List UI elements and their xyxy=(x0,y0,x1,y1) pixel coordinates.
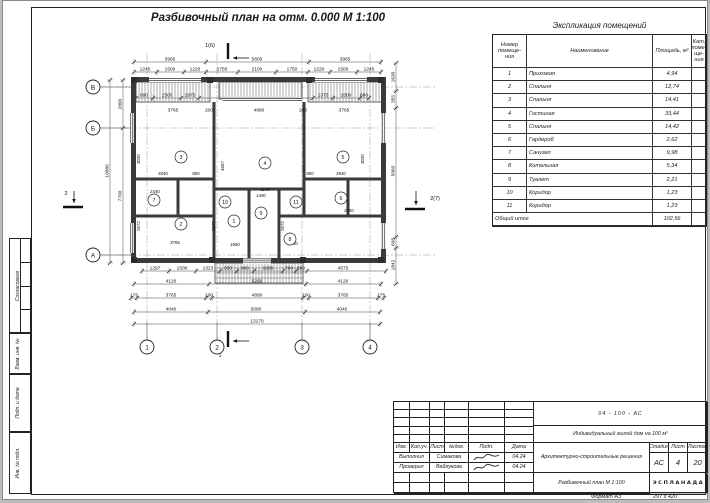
dim-text: 3765 xyxy=(338,293,349,299)
dim-text: 7700 xyxy=(118,190,124,201)
dim-text: 3020 xyxy=(360,154,365,164)
dim-text: 200 xyxy=(299,108,307,114)
dim-text: 2672 xyxy=(211,221,216,231)
dim-text: 4890 xyxy=(252,293,263,299)
room-area: 12,74 xyxy=(653,81,692,94)
dim-text: 175 xyxy=(377,293,385,299)
stamp-header: Изм. xyxy=(394,443,410,453)
dim-text: 900 xyxy=(241,266,249,272)
dim-text: 3765 xyxy=(339,108,350,114)
dim-text: 4657 xyxy=(220,161,225,171)
dim-text: 4120 xyxy=(338,279,349,285)
dim-text: 100 xyxy=(302,293,310,299)
revision-cell xyxy=(394,402,410,410)
role-label: Выполнил xyxy=(394,453,430,463)
col-header-area: Площадь, м² xyxy=(653,35,692,68)
revision-cell xyxy=(469,402,505,410)
dim-text: 700 xyxy=(285,266,293,272)
room-area: 5,34 xyxy=(653,160,692,173)
room-area: 14,41 xyxy=(653,94,692,107)
dim-text: 2 xyxy=(180,222,183,228)
empty-stamp-cell xyxy=(410,473,430,484)
col-header-number: Номер помеще- ния xyxy=(493,35,527,68)
dim-text: 3765 xyxy=(168,108,179,114)
section-mark-label: 1 xyxy=(218,353,221,359)
dim-text: 5290 xyxy=(252,279,263,285)
dim-text: 4040 xyxy=(337,307,348,313)
dim-text: 800 xyxy=(306,171,314,176)
empty-stamp-cell xyxy=(394,473,410,484)
section-name: Архитектурно-строительные решения xyxy=(534,443,650,473)
stage-label: Стадия xyxy=(650,443,669,453)
dim-text: 1 xyxy=(145,344,149,351)
room-number: 7 xyxy=(493,147,527,160)
room-category xyxy=(692,187,706,200)
dim-text: 4 xyxy=(368,344,372,351)
room-name: Коридор xyxy=(527,187,653,200)
dim-text: 608 xyxy=(391,238,397,246)
revision-cell xyxy=(410,410,430,418)
strip-label: Инв. № подл. xyxy=(15,423,25,503)
empty-stamp-cell xyxy=(469,473,505,484)
sheets-label: Листов xyxy=(688,443,708,453)
dim-text: 10 xyxy=(222,200,228,206)
dim-text: 2840 xyxy=(336,171,346,176)
dim-text: 3765 xyxy=(170,240,180,245)
room-area: 9,98 xyxy=(653,147,692,160)
total-area: 102,56 xyxy=(653,213,692,226)
doc-number: 04 - 100 - АС xyxy=(534,402,708,426)
revision-cell xyxy=(394,410,410,418)
dim-text: 1 xyxy=(233,219,236,225)
dim-text: 8 xyxy=(289,237,292,243)
empty-stamp-cell xyxy=(410,483,430,494)
dim-text: 5090 xyxy=(251,307,262,313)
signature xyxy=(469,453,505,463)
dim-text: 1500 xyxy=(341,93,352,99)
revision-cell xyxy=(445,402,469,410)
room-name: Котельная xyxy=(527,160,653,173)
room-area: 2,62 xyxy=(653,134,692,147)
dim-text: 2440 xyxy=(150,189,160,194)
room-number: 11 xyxy=(493,200,527,213)
revision-cell xyxy=(445,410,469,418)
stamp-header: Подп. xyxy=(469,443,505,453)
dim-text: 3020 xyxy=(136,154,141,164)
room-number: 10 xyxy=(493,187,527,200)
stamp-header: Дата xyxy=(505,443,534,453)
room-category xyxy=(692,174,706,187)
dim-text: 2672 xyxy=(136,221,141,231)
room-name: Гостиная xyxy=(527,108,653,121)
dim-text: 7 xyxy=(153,198,156,204)
dim-text: 1585 xyxy=(263,266,274,272)
project-name: Индивидуальный жилой дом на 100 м² xyxy=(534,426,708,443)
dim-text: 890 xyxy=(360,93,368,99)
dim-text: 1500 xyxy=(177,266,188,272)
section-mark-label: 2(7) xyxy=(430,196,440,202)
dim-text: 1500 xyxy=(338,67,349,73)
empty-stamp-cell xyxy=(469,483,505,494)
dim-text: 3965 xyxy=(165,57,176,63)
dim-text: 1750 xyxy=(217,67,228,73)
room-category xyxy=(692,108,706,121)
revision-cell xyxy=(505,410,534,418)
dim-text: 2100 xyxy=(252,67,263,73)
revision-cell xyxy=(445,418,469,426)
dim-text: 1500 xyxy=(165,67,176,73)
dim-text: 1220 xyxy=(190,67,201,73)
dim-text: 2 xyxy=(215,344,219,351)
dim-text: 13170 xyxy=(250,319,264,325)
dim-text: 1245 xyxy=(364,67,375,73)
revision-cell xyxy=(410,402,430,410)
revision-cell xyxy=(445,435,469,443)
room-area: 4,94 xyxy=(653,68,692,81)
dim-text: 800 xyxy=(192,171,200,176)
room-number: 2 xyxy=(493,81,527,94)
total-cat xyxy=(692,213,706,226)
dim-text: 11 xyxy=(293,200,298,206)
dim-text: 2840 xyxy=(158,171,168,176)
role-label: Проверил xyxy=(394,463,430,473)
dim-text: 4 xyxy=(264,161,267,167)
sheet-label: Лист xyxy=(669,443,688,453)
revision-cell xyxy=(469,410,505,418)
room-category xyxy=(692,94,706,107)
dim-text: 2440 xyxy=(344,208,354,213)
sheets-value: 20 xyxy=(688,453,708,473)
empty-stamp-cell xyxy=(505,483,534,494)
dim-text: 100 xyxy=(205,293,213,299)
stamp-header: Кол.уч. xyxy=(410,443,430,453)
dim-text: 175 xyxy=(130,293,138,299)
revision-cell xyxy=(430,410,445,418)
dim-text: 4040 xyxy=(166,307,177,313)
explication-title: Экспликация помещений xyxy=(492,22,707,30)
room-number: 3 xyxy=(493,94,527,107)
dim-text: 4120 xyxy=(166,279,177,285)
dim-text: 1750 xyxy=(287,67,298,73)
dim-text: 200 xyxy=(205,108,213,114)
revision-cell xyxy=(505,435,534,443)
room-number: 5 xyxy=(493,121,527,134)
revision-cell xyxy=(394,427,410,435)
room-area: 1,23 xyxy=(653,187,692,200)
plan-svg: 3965560039651245150012201750210017501220… xyxy=(53,11,473,381)
dim-text: 4890 xyxy=(254,108,265,114)
dim-text: 6 xyxy=(340,196,343,202)
section-mark-label: 2 xyxy=(64,191,67,197)
revision-cell xyxy=(469,427,505,435)
stamp-header: №док. xyxy=(445,443,469,453)
dim-text: 1323 xyxy=(203,266,214,272)
revision-cell xyxy=(430,418,445,426)
room-area: 14,42 xyxy=(653,121,692,134)
dim-text: 3965 xyxy=(340,57,351,63)
dim-text: 355 xyxy=(391,95,397,103)
empty-stamp-cell xyxy=(445,483,469,494)
dim-text: 5960 xyxy=(391,165,397,176)
dim-text: 2890 xyxy=(118,98,124,109)
dim-text: 1400 xyxy=(256,193,266,198)
revision-cell xyxy=(505,418,534,426)
room-area: 1,23 xyxy=(653,200,692,213)
room-number: 4 xyxy=(493,108,527,121)
role-date: 04.24 xyxy=(505,463,534,473)
revision-cell xyxy=(445,427,469,435)
room-category xyxy=(692,200,706,213)
dim-text: 9 xyxy=(260,211,263,217)
company-logo: ЭСПЛАНАДА xyxy=(650,474,708,492)
drawing-sheet: Разбивочный план на отм. 0.000 М 1:100 3… xyxy=(2,0,708,500)
dim-text: 3 xyxy=(300,344,304,351)
empty-stamp-cell xyxy=(445,473,469,484)
room-name: Спальня xyxy=(527,121,653,134)
revision-cell xyxy=(469,435,505,443)
dim-text: 4675 xyxy=(338,266,349,272)
dim-text: 5 xyxy=(342,155,345,161)
revision-cell xyxy=(410,435,430,443)
room-name: Гардероб xyxy=(527,134,653,147)
drawing-name: Разбивочный план М 1:100 xyxy=(534,473,650,495)
empty-stamp-cell xyxy=(394,483,410,494)
dim-text: 1950 xyxy=(230,242,240,247)
dim-text: 1630 xyxy=(391,71,397,82)
dim-text: 1975 xyxy=(185,93,196,99)
revision-cell xyxy=(430,427,445,435)
revision-cell xyxy=(505,427,534,435)
role-name: Ваблукова xyxy=(430,463,469,473)
format-label: Формат А3 xyxy=(591,495,621,501)
col-header-category: Кат. поме- ще- ния xyxy=(692,35,706,68)
room-name: Санузел xyxy=(527,147,653,160)
dim-text: 1245 xyxy=(140,67,151,73)
dim-text: 1220 xyxy=(314,67,325,73)
dim-text: 1375 xyxy=(318,93,329,99)
dim-text: 950 xyxy=(224,266,232,272)
dim-text: 2672 xyxy=(280,221,285,231)
revision-cell xyxy=(394,435,410,443)
room-name: Туалет xyxy=(527,174,653,187)
room-number: 9 xyxy=(493,174,527,187)
role-date: 04.24 xyxy=(505,453,534,463)
stamp-header: Лист xyxy=(430,443,445,453)
section-mark-label: 1(6) xyxy=(205,43,215,49)
empty-stamp-cell xyxy=(430,483,445,494)
revision-cell xyxy=(469,418,505,426)
dim-text: 3765 xyxy=(166,293,177,299)
dim-text: 1500 xyxy=(162,93,173,99)
signature-scribble xyxy=(472,453,502,462)
room-name: Прихожая xyxy=(527,68,653,81)
room-category xyxy=(692,134,706,147)
format-size: 297 x 420 xyxy=(653,495,677,501)
revision-cell xyxy=(394,418,410,426)
floor-plan-drawing: 3965560039651245150012201750210017501220… xyxy=(53,11,473,381)
dim-text: 1297 xyxy=(150,266,161,272)
room-name: Спальня xyxy=(527,94,653,107)
dim-text: 5600 xyxy=(252,57,263,63)
room-number: 1 xyxy=(493,68,527,81)
revision-cell xyxy=(505,402,534,410)
room-area: 33,44 xyxy=(653,108,692,121)
room-category xyxy=(692,68,706,81)
room-name: Коридор xyxy=(527,200,653,213)
room-number: 8 xyxy=(493,160,527,173)
dim-text: 3 xyxy=(180,155,183,161)
empty-stamp-cell xyxy=(505,473,534,484)
revision-cell xyxy=(430,402,445,410)
dim-text: В xyxy=(91,84,95,91)
room-name: Спальня xyxy=(527,81,653,94)
dim-text: 1842 xyxy=(391,259,397,270)
revision-cell xyxy=(410,418,430,426)
revision-cell xyxy=(430,435,445,443)
dim-text: А xyxy=(91,252,96,259)
col-header-name: Наименование xyxy=(527,35,653,68)
total-label: Общий итог xyxy=(493,213,653,226)
room-category xyxy=(692,147,706,160)
role-name: Симакова xyxy=(430,453,469,463)
dim-text: 1140 xyxy=(260,187,270,192)
room-category xyxy=(692,121,706,134)
room-category xyxy=(692,81,706,94)
explication-table: Номер помеще- нияНаименованиеПлощадь, м²… xyxy=(492,34,707,227)
room-number: 6 xyxy=(493,134,527,147)
dim-text: 600 xyxy=(297,266,305,272)
sheet-value: 4 xyxy=(669,453,688,473)
empty-stamp-cell xyxy=(430,473,445,484)
signature xyxy=(469,463,505,473)
title-block: Изм.Кол.уч.Лист№док.Подп.ДатаВыполнилСим… xyxy=(393,401,707,493)
stage-value: АС xyxy=(650,453,669,473)
dim-text: 890 xyxy=(140,93,148,99)
revision-cell xyxy=(410,427,430,435)
dim-text: 10080 xyxy=(105,164,111,178)
dim-text: Б xyxy=(91,125,95,132)
signature-scribble xyxy=(472,463,502,472)
room-area: 2,21 xyxy=(653,174,692,187)
room-category xyxy=(692,160,706,173)
